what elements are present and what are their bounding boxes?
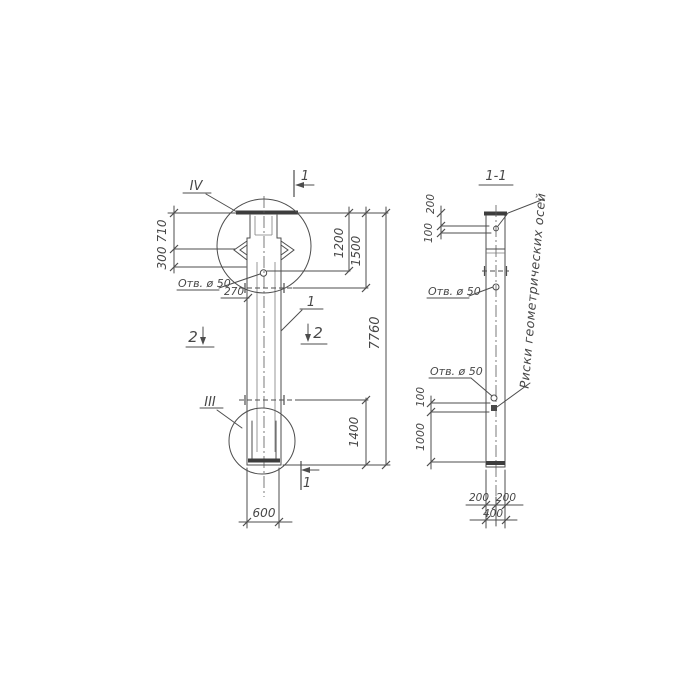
section-dim-top-left: 200 100 [423,194,491,243]
detail-label-IV: IV [190,179,204,194]
dim-270: 270 [224,286,244,298]
section-hole-label-upper: Отв. ø 50 [427,285,493,298]
hole-50-front [260,270,266,276]
dim-600: 600 [253,506,276,520]
section-title: 1-1 [485,169,506,184]
dim-1200: 1200 [332,227,346,258]
section-mark-2-left: 2 [186,327,214,347]
section-hole-label-lower: Отв. ø 50 [429,365,492,396]
dim-200-bottom-right: 200 [496,492,516,504]
section-view-outline [482,205,509,496]
dim-100-top: 100 [423,223,435,243]
position-label: 1 [307,295,315,310]
dim-600-group: 600 [239,468,292,528]
hole-label-lower: Отв. ø 50 [430,365,483,378]
dim-chain-right: 1200 1500 7760 1400 [332,207,390,469]
hole-label-front: Отв. ø 50 [178,277,231,290]
section1-top-label: 1 [301,169,309,184]
section2-left-label: 2 [188,328,198,346]
dim-1000: 1000 [414,423,427,451]
dim-1500: 1500 [349,235,363,266]
dim-1400: 1400 [347,416,361,447]
section-dim-bottom-left: 100 1000 [414,387,490,469]
technical-drawing: Отв. ø 50 710 300 270 1200 1500 7760 14 [0,0,700,700]
detail-circle-bottom [229,408,295,474]
section1-bottom-label: 1 [303,476,311,491]
dim-710: 710 [155,219,169,242]
hole-label-upper: Отв. ø 50 [428,285,481,298]
dim-200-bottom-left: 200 [469,492,489,504]
section-mark-1-top: 1 [294,169,314,197]
axis-mark-square [491,405,497,411]
dim-300: 300 [155,246,169,269]
dim-7760: 7760 [368,316,383,349]
detail-marker-top: IV [183,179,237,212]
drawing-sheet: Отв. ø 50 710 300 270 1200 1500 7760 14 [0,0,700,700]
section2-right-label: 2 [313,324,323,342]
detail-marker-bottom: III [200,395,242,428]
axes-note: Риски геометрических осей [516,192,548,389]
dim-chain-left: 710 300 [155,206,246,273]
section-view-title: 1-1 [479,169,513,185]
section-mark-2-right: 2 [301,324,327,344]
front-view-hole: Отв. ø 50 [177,270,350,290]
dim-400: 400 [483,508,503,520]
dim-200-top: 200 [425,194,437,214]
section-dim-bottom: 200 200 400 [466,470,523,528]
dim-100-mid: 100 [415,387,427,407]
